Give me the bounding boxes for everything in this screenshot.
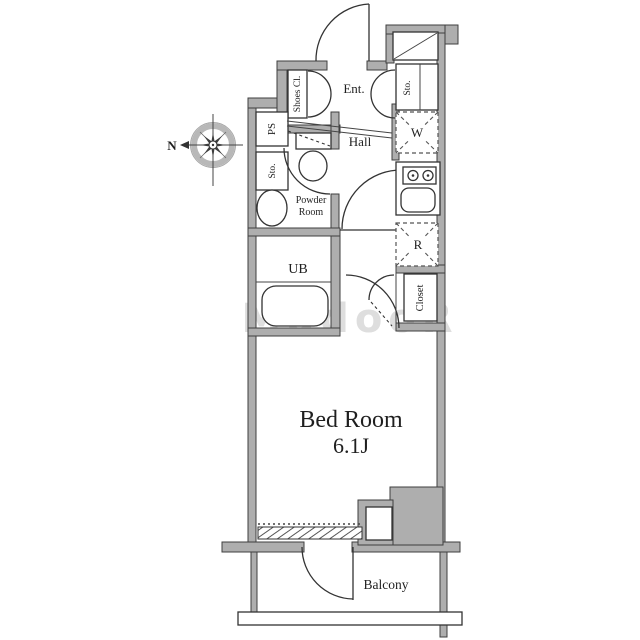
pipe-space-label: PS bbox=[266, 123, 278, 135]
entrance-storage-door-upper bbox=[371, 70, 395, 94]
corner-column-notch bbox=[366, 507, 392, 540]
kitchen-sink bbox=[401, 188, 435, 212]
entrance-label: Ent. bbox=[343, 81, 364, 96]
window-hatch-band bbox=[258, 527, 362, 539]
powder-hall-wall-lower bbox=[331, 194, 339, 230]
balcony-railing bbox=[238, 612, 462, 625]
powder-hall-wall-upper bbox=[331, 112, 339, 149]
bedroom-size-label: 6.1J bbox=[333, 433, 370, 458]
compass-north-label: N bbox=[167, 138, 177, 153]
toilet-bowl bbox=[299, 151, 327, 181]
balcony-left-wall bbox=[251, 552, 257, 614]
entrance-storage-door-lower bbox=[371, 94, 395, 118]
unit-bath-label: UB bbox=[288, 262, 307, 277]
compass: N bbox=[167, 114, 243, 186]
entrance-storage-label: Sto. bbox=[403, 80, 413, 95]
kitchen-fixtures bbox=[396, 162, 440, 215]
ub-right-wall bbox=[331, 236, 340, 336]
unit-bath-fixtures bbox=[256, 282, 331, 326]
floorplan-svg: MadooR bbox=[0, 0, 640, 640]
bedroom-window bbox=[258, 524, 362, 539]
refrigerator-label: R bbox=[414, 237, 423, 252]
balcony-label: Balcony bbox=[364, 577, 409, 592]
top-right-stub bbox=[445, 25, 458, 44]
entrance-top-wall-left bbox=[277, 61, 327, 70]
closet-label: Closet bbox=[415, 285, 426, 312]
entrance-top-wall-right bbox=[367, 61, 387, 70]
shoes-closet-door-lower bbox=[308, 94, 331, 117]
outer-wall-left bbox=[248, 98, 256, 552]
powder-room-label-line1: Powder bbox=[296, 195, 327, 206]
bedroom-bottom-wall-left bbox=[222, 542, 304, 552]
hall-label: Hall bbox=[349, 134, 372, 149]
closet-bottom-wall bbox=[396, 323, 445, 331]
corner-column-block bbox=[390, 487, 443, 545]
powder-room-label-line2: Room bbox=[299, 207, 324, 218]
north-arrow-icon bbox=[180, 141, 189, 149]
shoes-closet-door-upper bbox=[308, 71, 331, 94]
compass-hub-dot bbox=[212, 144, 214, 146]
ub-bottom-wall bbox=[248, 328, 340, 336]
storage-label: Sto. bbox=[268, 163, 278, 178]
washbasin bbox=[257, 190, 287, 226]
powder-ub-wall bbox=[248, 228, 340, 236]
bathtub bbox=[262, 286, 328, 326]
bedroom-name-label: Bed Room bbox=[299, 407, 403, 433]
entrance-door-swing bbox=[316, 4, 369, 61]
stove-burner-right-dot bbox=[427, 174, 430, 177]
floorplan-canvas: MadooR bbox=[0, 0, 640, 640]
stove-burner-left-dot bbox=[412, 174, 415, 177]
washer-label: W bbox=[411, 125, 424, 140]
hall-door-swing bbox=[342, 170, 401, 229]
balcony-door-swing bbox=[302, 547, 353, 599]
shoes-closet-label: Shoes Cl. bbox=[293, 76, 303, 112]
